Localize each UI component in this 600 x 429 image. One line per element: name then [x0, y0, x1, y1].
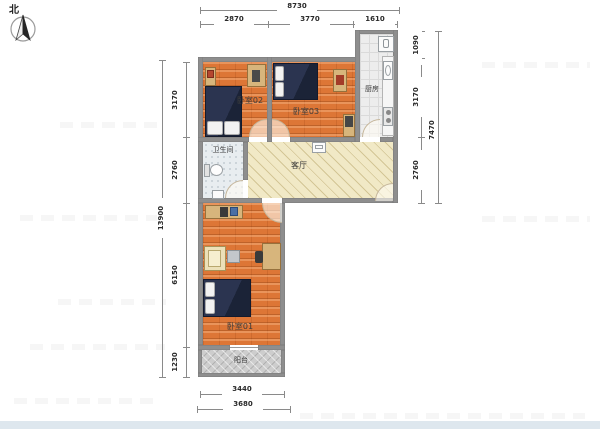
dim-tick: [197, 406, 198, 413]
dim-tick: [418, 137, 425, 138]
wall: [198, 373, 285, 377]
kitchen-label: 厨房: [358, 84, 386, 94]
watermark-row: [482, 62, 590, 68]
dim-tick: [183, 62, 190, 63]
dim-tick: [435, 31, 442, 32]
dim-left-seg3: 6150: [171, 255, 181, 295]
bathroom-label: 卫生间: [202, 145, 244, 155]
dim-left-seg4: 1230: [171, 342, 181, 382]
toilet-icon: [210, 164, 223, 176]
dim-tick: [183, 377, 190, 378]
washbasin-icon: [212, 190, 224, 199]
dim-top-seg1: 2870: [214, 15, 254, 25]
bedroom1-desk-chair: [255, 251, 263, 263]
dim-tick: [159, 60, 166, 61]
footer-band: [0, 421, 600, 429]
dim-top-total: 8730: [277, 2, 317, 12]
dim-bottom-inner: 3440: [222, 385, 262, 395]
bedroom1-armchair-cushion: [208, 250, 221, 267]
wall: [380, 137, 393, 142]
watermark-row: [14, 398, 154, 404]
dim-line-right-total: [438, 31, 439, 203]
bedroom1-dresser-item: [220, 207, 228, 217]
watermark-row: [482, 216, 590, 222]
wall: [280, 203, 285, 345]
dim-tick: [183, 137, 190, 138]
bedroom2-wardrobe-item: [252, 70, 260, 82]
dim-tick: [290, 406, 291, 413]
dim-right-seg2: 3170: [412, 77, 422, 117]
wall: [198, 345, 230, 350]
bedroom3-wardrobe-item: [336, 75, 344, 85]
bedroom1-pillow: [205, 282, 215, 297]
sink-basin: [385, 65, 391, 76]
watermark-row: [300, 413, 585, 419]
watermark-row: [60, 122, 165, 128]
dim-tick: [183, 347, 190, 348]
wall: [198, 137, 249, 142]
stove-burner: [386, 118, 391, 123]
dim-tick: [418, 203, 425, 204]
tv-screen: [315, 145, 323, 149]
bedroom2-pillow: [207, 121, 223, 135]
dim-top-seg3: 1610: [355, 15, 395, 25]
dim-left-seg2: 2760: [171, 150, 181, 190]
dim-top-seg2: 3770: [290, 15, 330, 25]
dim-tick: [200, 21, 201, 28]
dim-right-seg3: 2760: [412, 150, 422, 190]
dim-tick: [200, 7, 201, 14]
dim-left-seg1: 3170: [171, 80, 181, 120]
watermark-row: [30, 344, 165, 350]
wall: [198, 350, 202, 373]
dim-left-total: 13900: [157, 198, 167, 238]
wall: [198, 198, 262, 203]
dim-tick: [399, 7, 400, 14]
dim-tick: [159, 377, 166, 378]
bedroom3-label: 卧室03: [284, 107, 328, 117]
bedroom2-pillow: [224, 121, 240, 135]
wall: [198, 57, 360, 62]
dim-tick: [353, 21, 354, 28]
bedroom1-label: 卧室01: [218, 322, 262, 332]
bedroom1-desk: [262, 243, 281, 270]
dim-tick: [268, 21, 269, 28]
balcony-door-line: [230, 347, 258, 348]
bedroom1-dresser-item-blue: [230, 207, 238, 216]
bedroom1-side-table: [227, 250, 240, 263]
appliance-detail: [383, 39, 389, 48]
watermark-row: [58, 299, 166, 305]
wall: [198, 203, 203, 345]
dim-tick: [397, 21, 398, 28]
watermark-row: [20, 215, 165, 221]
dim-right-total: 7470: [428, 110, 438, 150]
balcony-label: 阳台: [222, 355, 260, 365]
dim-tick: [200, 391, 201, 398]
dim-line-left-segments: [186, 62, 187, 377]
compass-icon: [4, 10, 42, 48]
bedroom2-cabinet-item: [207, 70, 214, 78]
dim-bottom-outer: 3680: [223, 400, 263, 410]
bedroom1-pillow: [205, 299, 215, 314]
bedroom3-pillow: [275, 82, 284, 97]
living-room-label: 客厅: [281, 161, 317, 171]
wall: [281, 350, 285, 373]
floorplan-canvas: 北 8730 2870 3770 1610 13900 3170 2760 61…: [0, 0, 600, 429]
bedroom2-label: 卧室02: [229, 96, 271, 106]
dim-tick: [284, 391, 285, 398]
stove-burner: [386, 110, 391, 115]
wall: [355, 30, 398, 34]
dim-right-seg1: 1090: [412, 25, 422, 65]
bedroom3-pillow: [275, 66, 284, 81]
dim-tick: [435, 203, 442, 204]
wall: [198, 57, 203, 203]
dim-tick: [183, 203, 190, 204]
bedroom3-cabinet-item: [345, 116, 353, 127]
